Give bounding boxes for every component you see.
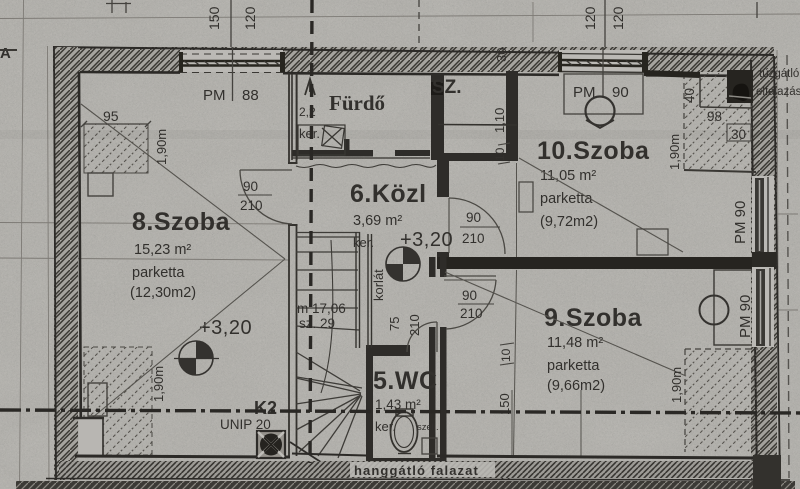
svg-text:210: 210 [460, 306, 483, 321]
svg-text:90: 90 [243, 179, 258, 194]
svg-text:1,90m: 1,90m [669, 367, 684, 403]
svg-text:m 17,06: m 17,06 [297, 301, 346, 316]
svg-text:10: 10 [499, 348, 513, 362]
svg-text:ker.: ker. [353, 235, 374, 250]
svg-text:PM 90: PM 90 [732, 201, 749, 244]
svg-text:210: 210 [462, 231, 485, 246]
svg-text:3,69 m²: 3,69 m² [353, 213, 402, 229]
svg-text:parketta: parketta [540, 191, 593, 207]
svg-text:120: 120 [242, 6, 258, 30]
svg-text:(9,66m2): (9,66m2) [547, 378, 605, 394]
svg-text:K2: K2 [254, 398, 277, 418]
svg-text:11,48 m²: 11,48 m² [547, 335, 603, 351]
svg-text:PM 90: PM 90 [737, 295, 754, 338]
svg-text:Fürdő: Fürdő [329, 91, 385, 115]
svg-text:9.Szoba: 9.Szoba [544, 304, 643, 332]
svg-text:11,05 m²: 11,05 m² [540, 168, 596, 184]
svg-text:6.Közl: 6.Közl [350, 180, 427, 208]
svg-text:+3,20: +3,20 [199, 317, 252, 339]
svg-text:parketta: parketta [132, 265, 185, 281]
svg-text:PM: PM [203, 87, 226, 104]
svg-text:(9,72m2): (9,72m2) [540, 214, 598, 230]
svg-text:90: 90 [466, 210, 481, 225]
svg-text:1,10: 1,10 [492, 108, 507, 133]
svg-text:korlát: korlát [371, 269, 386, 301]
svg-text:15,23 m²: 15,23 m² [134, 242, 191, 258]
svg-text:5.WC: 5.WC [373, 367, 438, 395]
svg-text:szell.: szell. [417, 422, 439, 433]
svg-text:90: 90 [462, 288, 477, 303]
svg-text:UNIP 20: UNIP 20 [220, 417, 271, 432]
svg-text:90: 90 [612, 84, 629, 101]
svg-text:10.Szoba: 10.Szoba [537, 137, 650, 165]
svg-text:1,90m: 1,90m [667, 134, 682, 170]
svg-text:tűzgátló: tűzgátló [759, 68, 799, 80]
svg-text:SZ.: SZ. [432, 77, 462, 98]
svg-text:A: A [0, 45, 11, 62]
svg-text:95: 95 [103, 108, 119, 124]
svg-text:sz. 29: sz. 29 [299, 316, 335, 331]
svg-text:elfalazás: elfalazás [756, 86, 800, 98]
svg-text:40: 40 [682, 88, 697, 103]
svg-text:2,2: 2,2 [299, 105, 316, 119]
svg-text:88: 88 [242, 87, 259, 104]
svg-text:1,43 m²: 1,43 m² [375, 397, 421, 412]
svg-text:1,90m: 1,90m [151, 366, 166, 402]
svg-text:120: 120 [610, 6, 626, 30]
svg-text:(12,30m2): (12,30m2) [130, 285, 196, 301]
svg-text:98: 98 [707, 109, 722, 124]
svg-text:150: 150 [206, 6, 222, 30]
svg-text:8.Szoba: 8.Szoba [132, 208, 231, 236]
svg-text:parketta: parketta [547, 358, 600, 374]
svg-text:30: 30 [494, 48, 509, 62]
svg-text:210: 210 [407, 314, 422, 336]
svg-text:210: 210 [240, 198, 263, 213]
svg-text:120: 120 [582, 6, 598, 30]
svg-text:10: 10 [493, 147, 507, 161]
svg-text:hanggátló falazat: hanggátló falazat [354, 463, 479, 478]
svg-text:75: 75 [387, 317, 402, 331]
